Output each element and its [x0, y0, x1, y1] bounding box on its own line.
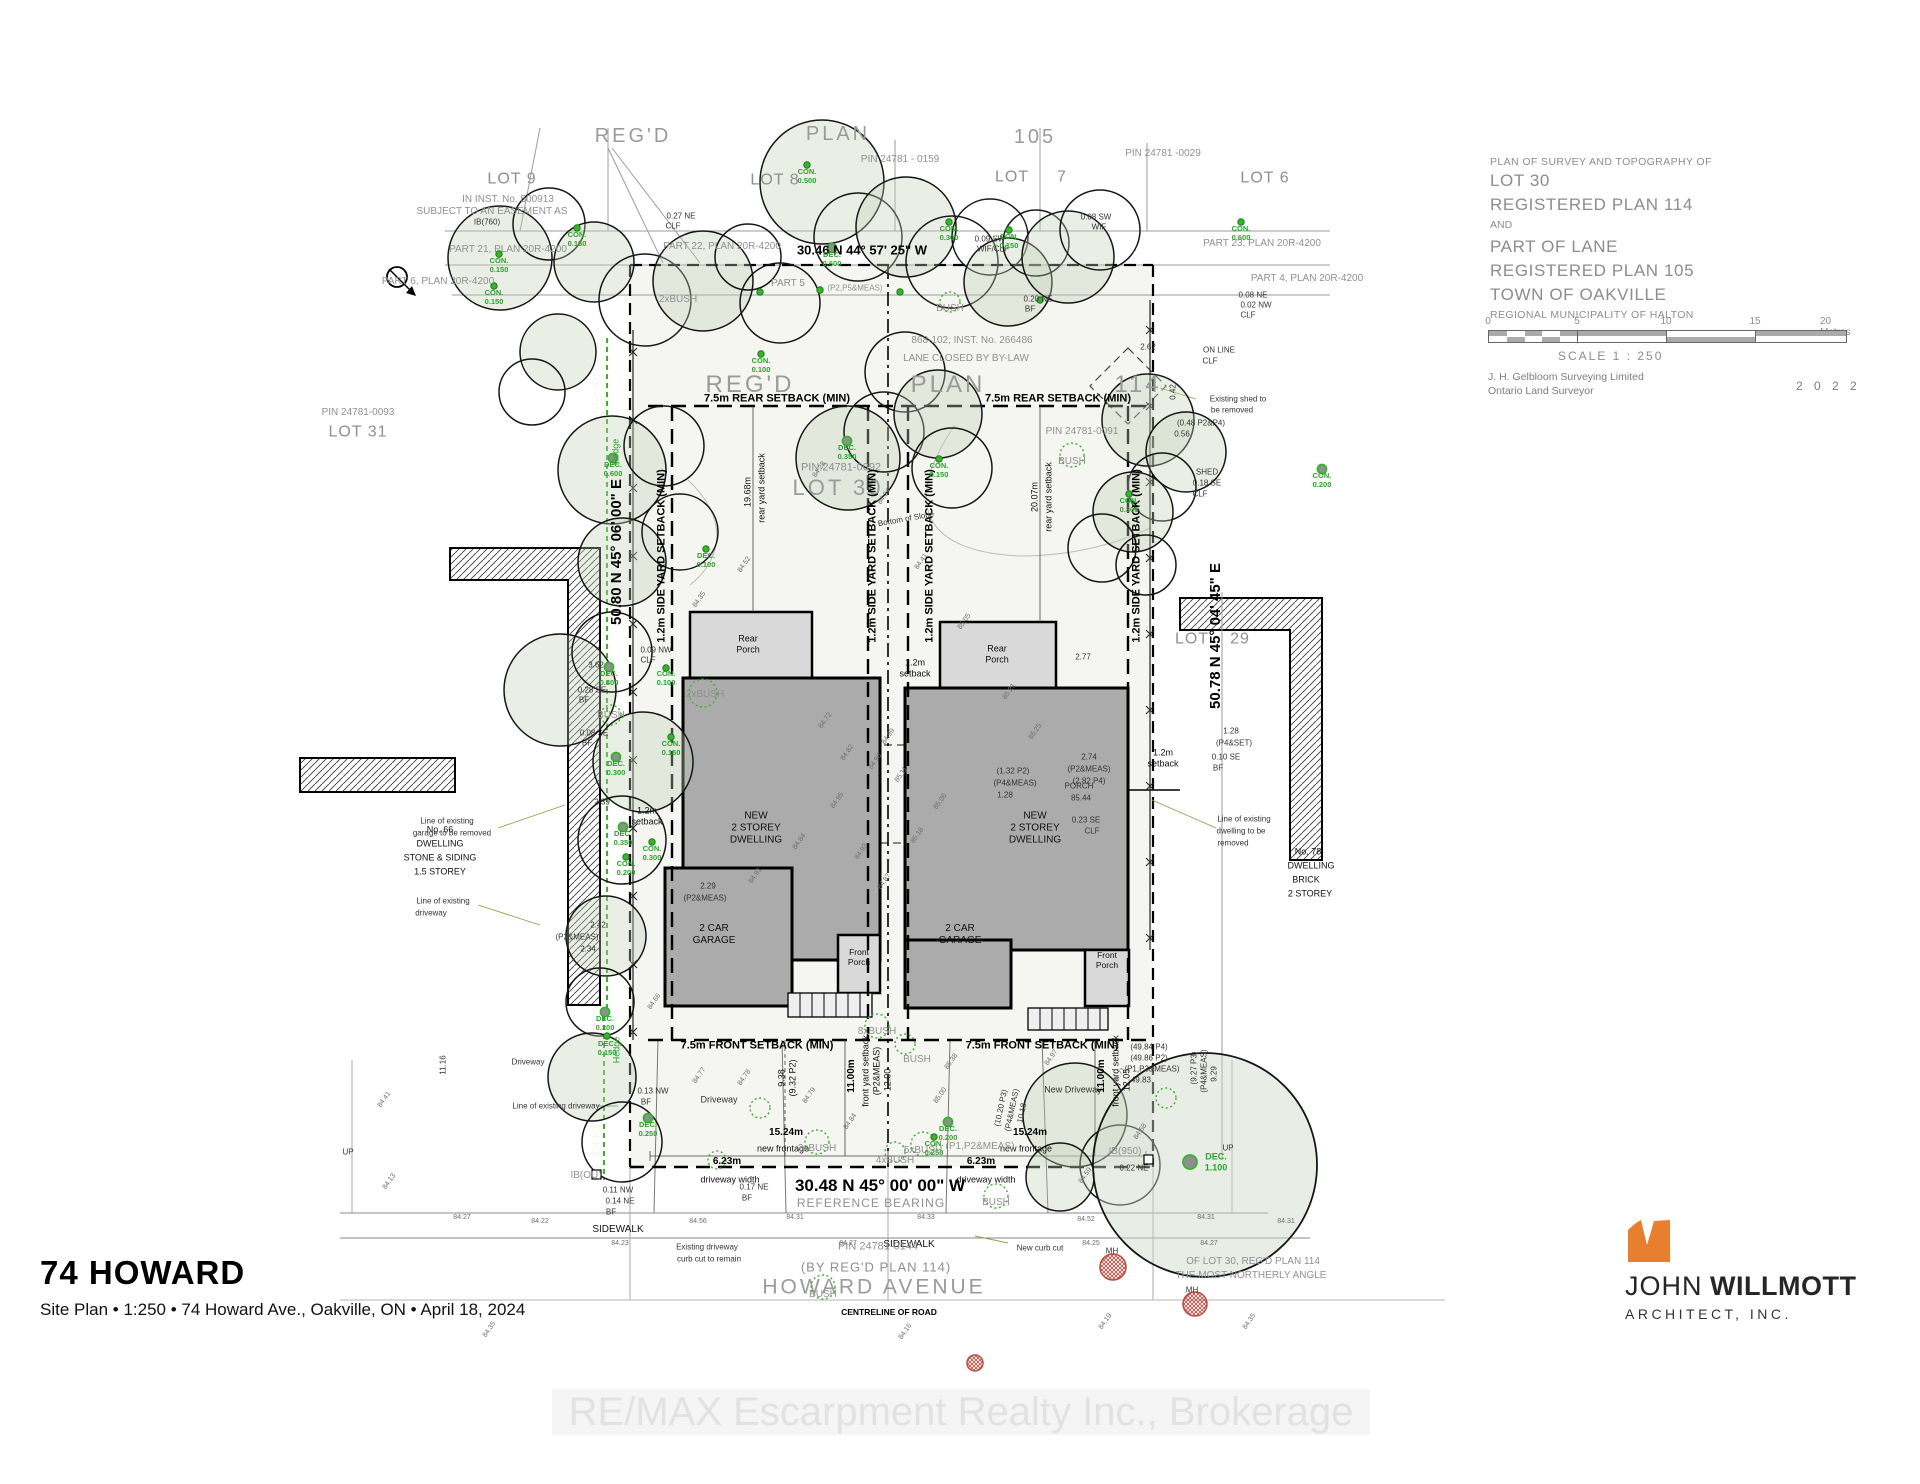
plan-label: DEC. 0.350: [838, 444, 857, 462]
plan-label: garage to be removed: [413, 828, 491, 837]
plan-label: 2.42: [590, 920, 606, 929]
plan-label: ON LINE: [1203, 345, 1235, 354]
plan-label: New curb cut: [1017, 1243, 1064, 1252]
plan-label: 7.5m FRONT SETBACK (MIN): [966, 1040, 1119, 1053]
plan-label: DEC. 0.200: [596, 1015, 615, 1033]
plan-label: (1.32 P2): [997, 766, 1030, 775]
survey-title-plan: REGISTERED PLAN 114: [1490, 195, 1860, 215]
plan-label: 1.5 STOREY: [414, 867, 466, 878]
plan-label: CON. 0.100: [657, 670, 676, 688]
plan-label: 2 CAR GARAGE: [939, 923, 982, 947]
plan-label: CON. 0.500: [798, 168, 817, 186]
plan-label: 0.18 SE: [1193, 478, 1221, 487]
plan-label: 2.39: [594, 797, 610, 806]
plan-label: 84.82: [840, 743, 857, 762]
plan-label: 84.77: [692, 1066, 709, 1085]
plan-label: LOT 9: [487, 171, 536, 190]
survey-title-town: TOWN OF OAKVILLE: [1490, 285, 1860, 305]
plan-label: 7.5m REAR SETBACK (MIN): [704, 393, 850, 406]
plan-label: PART 22, PLAN 20R-4200: [663, 241, 781, 253]
plan-label: 12.00: [883, 1069, 894, 1092]
plan-label: UP: [342, 1147, 353, 1156]
plan-label: STONE & SIDING: [404, 853, 477, 864]
survey-title-lane: PART OF LANE: [1490, 237, 1860, 257]
plan-label: NEW 2 STOREY DWELLING: [730, 810, 782, 845]
plan-label: LOT: [1175, 631, 1209, 650]
plan-label: front yard setback: [861, 1035, 872, 1107]
plan-label: 84.13: [382, 1172, 399, 1191]
plan-label: THE MOST NORTHERLY ANGLE: [1176, 1270, 1327, 1282]
plan-label: LANE CLOSED BY BY-LAW: [903, 353, 1029, 365]
plan-label: BF: [606, 1207, 616, 1216]
plan-label: PIN 24781 - 0159: [861, 154, 939, 166]
plan-label: 84.59: [1078, 1166, 1095, 1185]
plan-label: BUSH: [903, 1054, 931, 1066]
plan-label: 84.41: [377, 1090, 394, 1109]
plan-label: DEC. 0.150: [598, 1040, 617, 1058]
drawing-subtitle: Site Plan • 1:250 • 74 Howard Ave., Oakv…: [40, 1300, 525, 1320]
plan-label: 1.2m setback: [899, 657, 930, 678]
plan-label: CON. 0.200: [1313, 472, 1332, 490]
plan-label: 84.96: [868, 752, 885, 771]
architect-name-last: WILLMOTT: [1710, 1271, 1856, 1301]
plan-label: (49.86 P2): [1130, 1053, 1167, 1062]
plan-label: Front Porch: [1096, 950, 1118, 970]
plan-label: PIN 24781-0091: [1046, 426, 1119, 438]
plan-label: MH: [1186, 1285, 1198, 1294]
plan-label: (P2&MEAS): [872, 1047, 883, 1096]
plan-label: 84.79: [802, 1086, 819, 1105]
survey-title-plan105: REGISTERED PLAN 105: [1490, 261, 1860, 281]
plan-label: 0.09 NW: [640, 645, 671, 654]
plan-label: 84.99: [881, 727, 898, 746]
plan-label: PART 23, PLAN 20R-4200: [1203, 238, 1321, 250]
scale-tick: 0: [1485, 316, 1491, 327]
plan-label: PLAN: [911, 371, 986, 399]
plan-label: 2xBUSH: [659, 294, 697, 306]
plan-label: 3xBUSH: [798, 1143, 836, 1155]
plan-label: PIN 24781-0093: [322, 407, 395, 419]
plan-label: 11.00m: [1096, 1059, 1108, 1092]
plan-label: 11.00m: [846, 1059, 858, 1092]
site-plan-page: REG'DPLAN105LOT 9IN INST. No. 500913SUBJ…: [0, 0, 1920, 1484]
plan-label: 2.62: [1140, 342, 1156, 351]
scale-ticks: 0 5 10 15 20 Metres: [1488, 316, 1868, 328]
plan-label: 0.08 SW: [1081, 212, 1112, 221]
plan-label: IB(950): [1109, 1146, 1142, 1158]
plan-label: (49.84 P4): [1130, 1042, 1167, 1051]
plan-label: (0.48 P2&P4): [1177, 418, 1225, 427]
plan-label: Rear Porch: [985, 643, 1009, 664]
plan-label: 0.13 NW: [637, 1086, 668, 1095]
plan-label: 6.23m: [967, 1156, 995, 1168]
plan-label: 0.23 SE: [1072, 815, 1100, 824]
plan-label: BUSH: [982, 1197, 1010, 1209]
scale-label: SCALE 1 : 250: [1558, 349, 1868, 363]
plan-label: UP: [1222, 1143, 1233, 1152]
plan-label: Front Porch: [848, 947, 870, 967]
plan-label: 50.80 N 45° 06' 00" E: [608, 479, 626, 625]
plan-label: DEC. 0.350: [614, 830, 633, 848]
plan-label: 0.17 NE: [740, 1182, 769, 1191]
plan-label: 20.07m: [1030, 482, 1041, 512]
surveyor-title: Ontario Land Surveyor: [1488, 384, 1644, 398]
plan-label: 84.31: [786, 1214, 804, 1222]
plan-label: 1.2m setback: [1147, 747, 1178, 768]
plan-label: 15.24m: [1013, 1127, 1047, 1139]
plan-label: WIF: [1092, 222, 1107, 231]
plan-label: 1.28: [997, 790, 1013, 799]
plan-label: 84.31: [1197, 1214, 1215, 1222]
plan-label: DEC. 1.100: [1205, 1151, 1228, 1172]
plan-label: 84.25: [1082, 1240, 1100, 1248]
plan-label: 84.27: [453, 1214, 471, 1222]
drawing-title: 74 HOWARD: [40, 1254, 525, 1292]
plan-label: 84.23: [611, 1240, 629, 1248]
plan-label: 2.74: [1081, 752, 1097, 761]
plan-label: removed: [1217, 838, 1248, 847]
plan-label: 0.27 NE: [667, 211, 696, 220]
plan-label: 15.24m: [769, 1127, 803, 1139]
plan-label: 84.87: [877, 872, 894, 891]
plan-label: 85.05: [957, 612, 974, 631]
plan-label: 1.28: [1223, 726, 1239, 735]
plan-label: 0.42: [1168, 384, 1177, 400]
plan-label: 9.38: [777, 1069, 788, 1087]
plan-label: CON. 0.100: [752, 357, 771, 375]
surveyor-info: J. H. Gelbloom Surveying Limited Ontario…: [1488, 370, 1644, 398]
plan-label: No. 78: [1295, 847, 1322, 858]
plan-label: 49.83: [1131, 1075, 1151, 1084]
plan-label: (9.27 P3): [1189, 1052, 1198, 1085]
plan-label: CON. 0.150: [568, 231, 587, 249]
plan-label: PART 4, PLAN 20R-4200: [1251, 273, 1363, 285]
plan-label: 0.08 NE: [1239, 290, 1268, 299]
survey-title-line: PLAN OF SURVEY AND TOPOGRAPHY OF: [1490, 156, 1860, 168]
plan-label: Existing shed to: [1210, 394, 1266, 403]
plan-label: LOT 6: [1240, 170, 1289, 189]
plan-label: CLF: [1202, 356, 1217, 365]
survey-year: 2 0 2 2: [1796, 379, 1861, 393]
plan-label: 2xBUSH: [686, 689, 724, 701]
plan-label: 84.35: [1242, 1312, 1259, 1331]
plan-label: Line of existing driveway: [512, 1101, 599, 1110]
plan-label: 84.35: [482, 1320, 499, 1339]
plan-label: DWELLING: [1287, 861, 1334, 872]
plan-label: 2.29: [700, 881, 716, 890]
plan-label: driveway width: [956, 1175, 1015, 1186]
plan-label: 2 STOREY: [1288, 889, 1332, 900]
plan-label: 84.31: [1277, 1218, 1295, 1226]
plan-label: 11.16: [438, 1055, 447, 1074]
plan-label: 7.5m REAR SETBACK (MIN): [985, 393, 1131, 406]
plan-label: curb cut to remain: [677, 1254, 741, 1263]
plan-label: 9.29: [1209, 1066, 1218, 1082]
plan-label: CLF: [640, 655, 655, 664]
plan-label: 84.58: [1133, 1122, 1150, 1141]
surveyor-firm: J. H. Gelbloom Surveying Limited: [1488, 370, 1644, 384]
plan-label: PART 6, PLAN 20R-4200: [382, 276, 494, 288]
plan-label: (BY REG'D PLAN 114): [801, 1259, 951, 1274]
plan-label: LOT 8: [750, 172, 799, 191]
plan-label: BF: [1213, 763, 1223, 772]
plan-label: CON. 0.150: [662, 740, 681, 758]
plan-label: LOT: [995, 169, 1029, 188]
plan-label: BUSH: [597, 710, 625, 722]
plan-label: 84.27: [839, 1240, 857, 1248]
plan-label: 84.35: [692, 590, 709, 609]
plan-label: SUBJECT TO AN EASEMENT AS: [417, 206, 568, 218]
plan-label: BF: [579, 695, 589, 704]
plan-label: CLF: [1192, 489, 1207, 498]
plan-label: CON. 0.300: [940, 225, 959, 243]
plan-label: DEC. 0.300: [607, 760, 626, 778]
plan-label: 3.62: [588, 660, 604, 669]
plan-label: 0.11 NW: [603, 1185, 634, 1194]
plan-label: 30.46 N 44° 57' 25" W: [797, 242, 927, 257]
plan-label: 85.00: [933, 1086, 950, 1105]
plan-label: 7.5m FRONT SETBACK (MIN): [681, 1040, 834, 1053]
plan-label: BUSH: [936, 303, 964, 315]
architect-name: JOHN WILLMOTT: [1625, 1271, 1875, 1302]
plan-label: dwelling to be: [1217, 826, 1266, 835]
plan-label: 868-102, INST. No. 266486: [911, 335, 1032, 347]
plan-label: SHED: [1196, 467, 1218, 476]
plan-label: CON. 0.150: [485, 289, 504, 307]
plan-label: BF: [742, 1193, 752, 1202]
plan-label: BF: [1025, 304, 1035, 313]
plan-label: 0.10 SE: [1212, 752, 1240, 761]
plan-label: 4xBUSH: [876, 1155, 914, 1167]
plan-label: SIDEWALK: [592, 1224, 643, 1236]
plan-label: DEC. 0.600: [823, 251, 842, 269]
plan-label: (P4&SET): [1216, 738, 1252, 747]
plan-label: 1.2m SIDE YARD SETBACK (MIN): [656, 469, 669, 643]
plan-label: 84.66: [647, 992, 664, 1011]
plan-label: (2.82 P4): [1073, 776, 1106, 785]
plan-label: REG'D: [595, 125, 672, 149]
plan-label: 7: [1057, 169, 1067, 188]
plan-label: CLF: [1084, 826, 1099, 835]
plan-label: Line of existing: [1217, 814, 1270, 823]
architect-logo: JOHN WILLMOTT ARCHITECT, INC.: [1625, 1220, 1875, 1322]
plan-label: CLF: [1240, 310, 1255, 319]
plan-label: 85.18: [910, 826, 927, 845]
plan-label: (P2,P5&MEAS): [827, 283, 882, 292]
plan-label: Line of existing: [416, 896, 469, 905]
plan-label: IN INST. No. 500913: [462, 194, 554, 206]
plan-label: 84.84: [843, 1112, 860, 1131]
scale-bar: 0 5 10 15 20 Metres SCALE 1 : 250: [1488, 316, 1868, 363]
plan-label: 84.19: [1098, 1312, 1115, 1331]
plan-label: New Driveway: [1044, 1085, 1102, 1096]
plan-label: 84.27: [1200, 1240, 1218, 1248]
plan-label: (9.32 P2): [788, 1059, 799, 1096]
plan-label: 85.25: [1028, 722, 1045, 741]
plan-label: CON. 0.600: [1232, 225, 1251, 243]
plan-label: 84.52: [1077, 1216, 1095, 1224]
plan-label: 0.56: [1174, 429, 1190, 438]
plan-label: 0.20 NE: [1024, 294, 1053, 303]
plan-label: CON. 0.150: [930, 462, 949, 480]
plan-label: BUSH: [1058, 456, 1086, 468]
plan-label: CON. 0.300: [643, 845, 662, 863]
plan-label: 50.78 N 45° 04' 45" E: [1207, 563, 1225, 709]
plan-label: DEC. 0.600: [604, 461, 623, 479]
plan-label: PART 5: [771, 278, 805, 290]
survey-title-and: AND: [1490, 219, 1860, 231]
plan-label: IB(760): [474, 217, 500, 226]
plan-label: 6.23m: [713, 1156, 741, 1168]
plan-label: BF: [641, 1097, 651, 1106]
brokerage-watermark: RE/MAX Escarpment Realty Inc., Brokerage: [552, 1389, 1370, 1435]
plan-label: 84.22: [531, 1218, 549, 1226]
plan-label: 84.56: [689, 1218, 707, 1226]
scale-tick: 5: [1574, 316, 1580, 327]
plan-label: CLF: [665, 221, 680, 230]
plan-label: 2 CAR GARAGE: [693, 923, 736, 947]
plan-label: rear yard setback: [757, 453, 768, 523]
plan-label: HOWARD AVENUE: [762, 1276, 985, 1301]
plan-label: 1.2m SIDE YARD SETBACK (MIN): [867, 469, 880, 643]
plan-label: (P2&MEAS): [1067, 764, 1110, 773]
plan-label: 85.44: [1071, 793, 1091, 802]
plan-label: 84.91: [748, 866, 765, 885]
plan-label: MH: [1106, 1246, 1118, 1255]
plan-label: 2.34: [580, 944, 596, 953]
plan-label: (P2&MEAS): [555, 932, 598, 941]
plan-label: 84.16: [898, 1322, 915, 1341]
plan-label: Rear Porch: [736, 633, 760, 654]
plan-label: 84.72: [818, 711, 835, 730]
plan-label: Driveway: [700, 1095, 737, 1106]
plan-label: 84.95: [830, 791, 847, 810]
plan-label: DWELLING: [416, 839, 463, 850]
plan-label: 2.77: [1075, 652, 1091, 661]
plan-label: 85.06: [933, 792, 950, 811]
plan-label: OF LOT 30, REG'D PLAN 114: [1186, 1256, 1320, 1268]
plan-label: PLAN: [806, 123, 870, 147]
plan-label: 85.21: [1002, 682, 1019, 701]
plan-label: 84.93: [854, 842, 871, 861]
survey-title-lot: LOT 30: [1490, 171, 1860, 191]
plan-label: CON. 0.150: [490, 257, 509, 275]
plan-label: CON. 0.200: [617, 860, 636, 878]
architect-subtitle: ARCHITECT, INC.: [1625, 1306, 1875, 1322]
survey-title-block: PLAN OF SURVEY AND TOPOGRAPHY OF LOT 30 …: [1490, 156, 1860, 324]
plan-label: BF: [582, 738, 592, 747]
plan-label: (P1,P3&MEAS): [1124, 1064, 1179, 1073]
plan-label: LOT 31: [328, 424, 387, 443]
plan-label: 0.22 NE: [1120, 1163, 1149, 1172]
plan-label: 84.78: [737, 1068, 754, 1087]
plan-label: 85.11: [894, 766, 911, 785]
plan-label: PIN 24781 -0029: [1125, 148, 1201, 160]
plan-label: 0.08 SE: [580, 728, 608, 737]
drawing-title-block: 74 HOWARD Site Plan • 1:250 • 74 Howard …: [40, 1254, 525, 1320]
plan-label: Driveway: [512, 1057, 545, 1066]
plan-label: 0.28 SE: [578, 685, 606, 694]
plan-label: (P2&MEAS): [683, 893, 726, 902]
plan-label: (P1,P2&MEAS): [946, 1141, 1015, 1153]
plan-label: Line of existing: [420, 816, 473, 825]
plan-label: NEW 2 STOREY DWELLING: [1009, 810, 1061, 845]
plan-label: 19.68m: [743, 477, 754, 507]
scale-bar-graphic: [1488, 330, 1847, 343]
plan-label: 84.52: [737, 555, 754, 574]
plan-label: driveway: [415, 908, 447, 917]
plan-label: BRICK: [1292, 875, 1320, 886]
plan-label: 105: [1014, 126, 1056, 150]
plan-label: 0.02 NW: [1240, 300, 1271, 309]
plan-label: 85.38: [944, 1052, 961, 1071]
plan-label: IB(OU): [570, 1170, 601, 1182]
architect-name-first: JOHN: [1625, 1271, 1703, 1301]
plan-label: CON. 0.300: [1120, 497, 1139, 515]
plan-label: DEC. 0.100: [697, 552, 716, 570]
plan-label: 0.14 NE: [606, 1196, 635, 1205]
plan-label: REFERENCE BEARING: [797, 1196, 945, 1210]
plan-label: Existing driveway: [676, 1242, 738, 1251]
plan-label: PART 21, PLAN 20R-4200: [449, 244, 567, 256]
plan-label: CENTRELINE OF ROAD: [841, 1307, 937, 1317]
plan-label: be removed: [1211, 405, 1253, 414]
architect-logo-icon: [1628, 1220, 1674, 1264]
plan-label: 84.84: [792, 832, 809, 851]
plan-label: 1.2m setback: [631, 805, 662, 826]
scale-tick: 10: [1660, 316, 1671, 327]
plan-label: (P4&MEAS): [993, 778, 1036, 787]
plan-label: rear yard setback: [1044, 462, 1055, 532]
plan-label: 84.33: [917, 1214, 935, 1222]
plan-label: CON. 0.150: [1000, 233, 1019, 251]
scale-tick: 15: [1749, 316, 1760, 327]
plan-label: 30.48 N 45° 00' 00" W: [795, 1176, 965, 1196]
plan-label: 29: [1230, 631, 1250, 650]
plan-label: DEC. 0.250: [639, 1121, 658, 1139]
plan-label: (P4&MEAS): [1199, 1049, 1208, 1092]
